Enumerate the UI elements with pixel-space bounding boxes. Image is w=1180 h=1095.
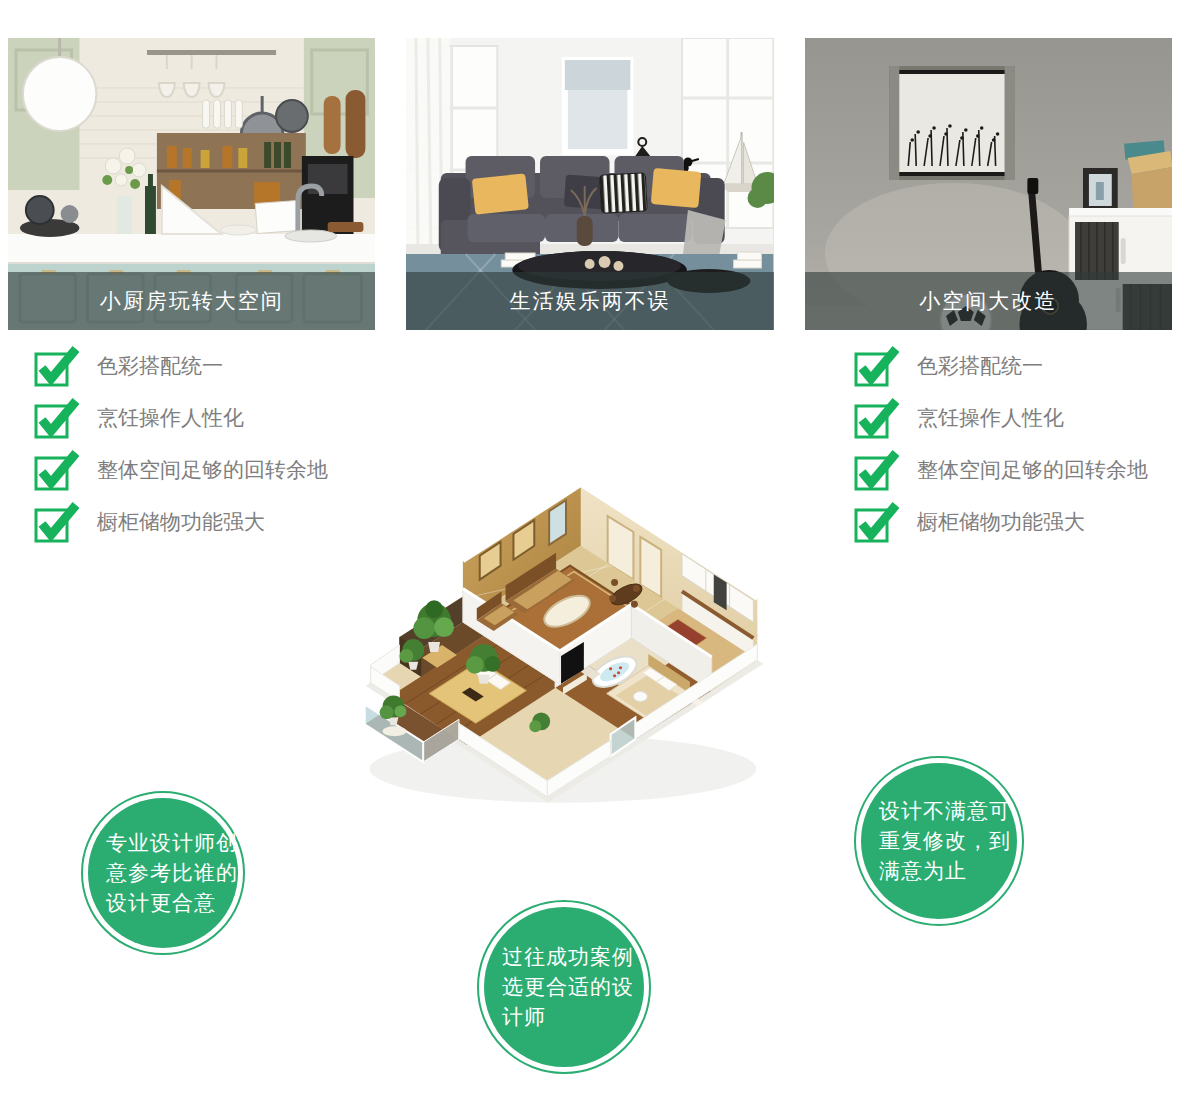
badge-line: 重复修改，到 xyxy=(879,826,1011,856)
feature-item: 色彩搭配统一 xyxy=(853,346,1180,398)
card-caption: 生活娱乐两不误 xyxy=(406,272,773,330)
checkbox-checked-icon xyxy=(33,502,79,544)
feature-card-kitchen[interactable]: 小厨房玩转大空间 xyxy=(8,38,375,330)
checkbox-checked-icon xyxy=(33,450,79,492)
benefit-badge-fill: 专业设计师创 意参考比谁的 设计更合意 xyxy=(88,798,238,948)
badge-line: 计师 xyxy=(502,1002,634,1032)
feature-item-label: 橱柜储物功能强大 xyxy=(97,502,265,542)
card-caption-text: 小空间大改造 xyxy=(919,287,1057,315)
feature-item-label: 整体空间足够的回转余地 xyxy=(917,450,1148,490)
feature-card-gray-room[interactable]: 小空间大改造 xyxy=(805,38,1172,330)
badge-line: 设计不满意可 xyxy=(879,796,1011,826)
feature-item-label: 橱柜储物功能强大 xyxy=(917,502,1085,542)
feature-item-label: 色彩搭配统一 xyxy=(917,346,1043,386)
feature-item: 整体空间足够的回转余地 xyxy=(33,450,363,502)
feature-checklist-left: 色彩搭配统一 烹饪操作人性化 整体空间足够的回转余地 橱柜储物功能强大 xyxy=(33,346,363,554)
badge-line: 专业设计师创 xyxy=(106,828,238,858)
checkbox-checked-icon xyxy=(33,346,79,388)
card-caption: 小空间大改造 xyxy=(805,272,1172,330)
badge-line: 满意为止 xyxy=(879,856,1011,886)
benefit-badge-fill: 过往成功案例 选更合适的设 计师 xyxy=(484,907,644,1067)
checkbox-checked-icon xyxy=(853,346,899,388)
feature-item: 烹饪操作人性化 xyxy=(33,398,363,450)
badge-line: 意参考比谁的 xyxy=(106,858,238,888)
feature-item: 整体空间足够的回转余地 xyxy=(853,450,1180,502)
feature-item: 色彩搭配统一 xyxy=(33,346,363,398)
badge-line: 过往成功案例 xyxy=(502,942,634,972)
feature-item-label: 整体空间足够的回转余地 xyxy=(97,450,328,490)
checkbox-checked-icon xyxy=(853,398,899,440)
feature-item: 橱柜储物功能强大 xyxy=(853,502,1180,554)
benefit-badge-fill: 设计不满意可 重复修改，到 满意为止 xyxy=(861,763,1017,919)
feature-item-label: 烹饪操作人性化 xyxy=(97,398,244,438)
page: { "colors": { "badge_green": "#2bad72", … xyxy=(0,0,1180,1095)
feature-card-living-room[interactable]: 生活娱乐两不误 xyxy=(406,38,773,330)
feature-item-label: 烹饪操作人性化 xyxy=(917,398,1064,438)
badge-line: 设计更合意 xyxy=(106,888,238,918)
feature-cards-row: 小厨房玩转大空间 xyxy=(8,38,1172,330)
feature-item: 橱柜储物功能强大 xyxy=(33,502,363,554)
checkbox-checked-icon xyxy=(33,398,79,440)
badge-line: 选更合适的设 xyxy=(502,972,634,1002)
checkbox-checked-icon xyxy=(853,502,899,544)
floorplan-3d-render xyxy=(333,470,799,815)
checkbox-checked-icon xyxy=(853,450,899,492)
benefit-badge-designer: 专业设计师创 意参考比谁的 设计更合意 xyxy=(81,791,245,955)
benefit-badge-revision: 设计不满意可 重复修改，到 满意为止 xyxy=(854,756,1024,926)
feature-item: 烹饪操作人性化 xyxy=(853,398,1180,450)
card-caption-text: 生活娱乐两不误 xyxy=(509,287,670,315)
card-caption-text: 小厨房玩转大空间 xyxy=(100,287,284,315)
feature-item-label: 色彩搭配统一 xyxy=(97,346,223,386)
feature-checklist-right: 色彩搭配统一 烹饪操作人性化 整体空间足够的回转余地 橱柜储物功能强大 xyxy=(853,346,1180,554)
benefit-badge-cases: 过往成功案例 选更合适的设 计师 xyxy=(477,900,651,1074)
card-caption: 小厨房玩转大空间 xyxy=(8,272,375,330)
